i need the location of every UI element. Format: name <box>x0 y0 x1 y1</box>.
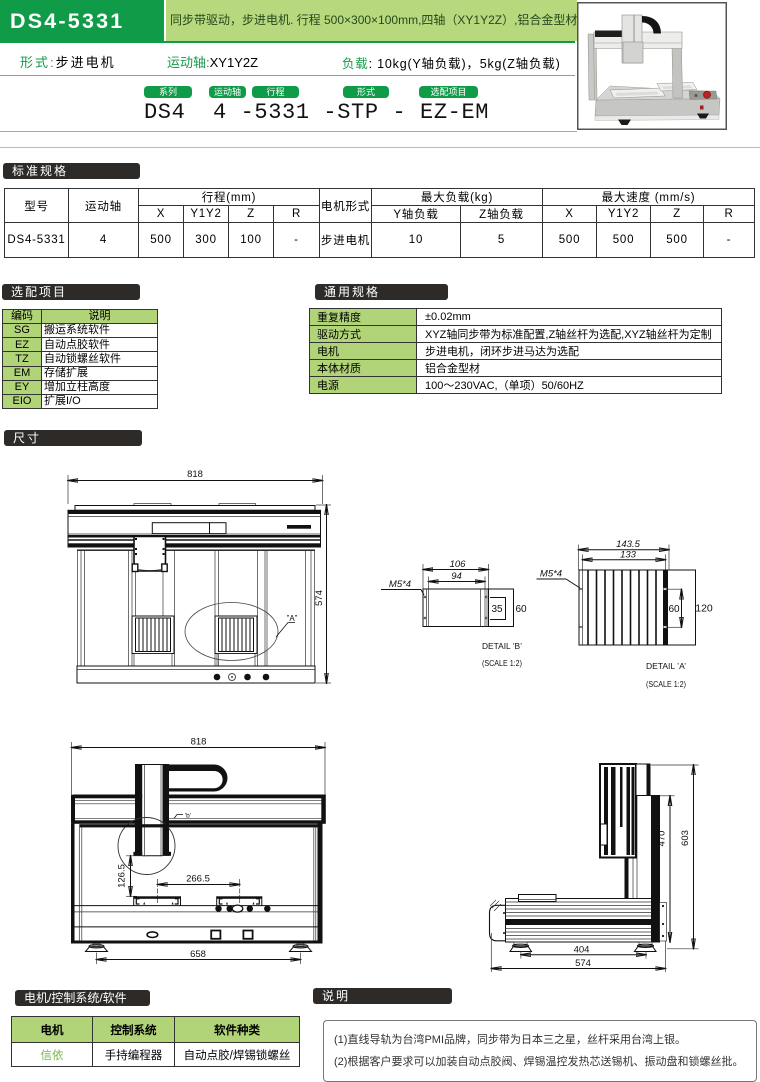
svg-text:M5*4: M5*4 <box>540 569 562 580</box>
svg-text:106: 106 <box>450 559 467 570</box>
svg-text:818: 818 <box>191 737 207 748</box>
svg-text:’b’: ’b’ <box>185 813 192 820</box>
svg-text:60: 60 <box>515 604 527 615</box>
svg-text:404: 404 <box>574 945 590 956</box>
svg-text:(SCALE 1:2): (SCALE 1:2) <box>482 659 522 668</box>
svg-text:”A”: ”A” <box>287 614 298 623</box>
svg-text:94: 94 <box>451 571 462 582</box>
svg-text:133: 133 <box>620 550 637 561</box>
svg-text:120: 120 <box>695 603 713 615</box>
svg-text:35: 35 <box>491 604 503 615</box>
svg-text:(SCALE 1:2): (SCALE 1:2) <box>646 680 686 689</box>
svg-text:126.5: 126.5 <box>117 864 128 888</box>
svg-text:266.5: 266.5 <box>186 874 210 885</box>
svg-text:658: 658 <box>190 949 206 960</box>
svg-text:470: 470 <box>657 831 668 847</box>
svg-text:DETAIL ’B’: DETAIL ’B’ <box>482 642 522 651</box>
svg-text:574: 574 <box>575 958 591 969</box>
svg-text:60: 60 <box>668 604 680 615</box>
svg-text:DETAIL ’A’: DETAIL ’A’ <box>646 662 686 671</box>
svg-text:603: 603 <box>680 830 691 846</box>
svg-text:574: 574 <box>314 590 325 606</box>
svg-text:818: 818 <box>187 469 203 480</box>
svg-text:M5*4: M5*4 <box>389 579 411 590</box>
svg-text:143.5: 143.5 <box>616 539 640 550</box>
